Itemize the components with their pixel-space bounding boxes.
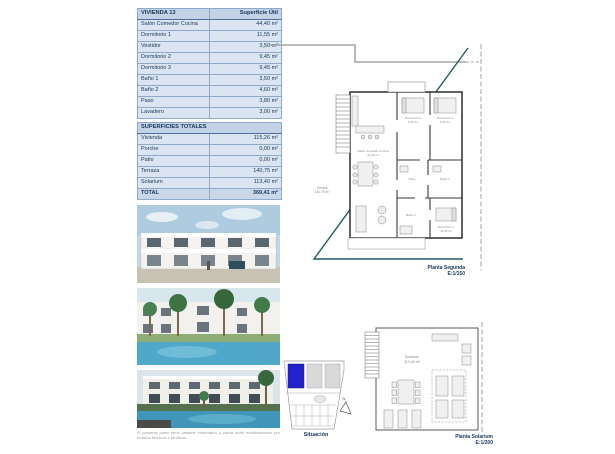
table-row: Porche0,00 m² (138, 145, 282, 156)
total-row: TOTAL369,41 m² (138, 189, 282, 200)
plot-boundary-line (270, 45, 466, 62)
salon-area: 44,40 m² (367, 153, 379, 157)
table-row: Dormitorio 39,45 m² (138, 64, 282, 75)
row-label: Solarium (138, 178, 210, 189)
balcony (388, 82, 425, 92)
block (325, 364, 340, 388)
row-label: Patio (138, 156, 210, 167)
plan-segunda-scale: E:1/150 (385, 271, 465, 277)
situacion-map: N (276, 356, 356, 432)
table-row: Dormitorio 111,55 m² (138, 31, 282, 42)
vivienda-table-header: VIVIENDA 13 Superficie Útil (138, 9, 282, 20)
disclaimer-text: El presente plano tiene carácter informa… (137, 430, 280, 440)
table-row: Vestidor3,50 m² (138, 42, 282, 53)
vivienda-title: VIVIENDA 13 (138, 9, 210, 20)
dorm2-area: 9,45 m² (408, 120, 418, 124)
row-label: Paso (138, 97, 210, 108)
townhouse-row (141, 233, 276, 270)
dorm1-area: 11,55 m² (440, 229, 452, 233)
row-label: Dormitorio 1 (138, 31, 210, 42)
stairs (365, 332, 379, 378)
bano1-label: Baño 1 (440, 177, 450, 181)
row-label: Dormitorio 3 (138, 64, 210, 75)
plan-solarium-scale: E:1/200 (400, 440, 493, 446)
solarium-area: 113,40 m² (404, 360, 421, 364)
table-row: Terraza140,75 m² (138, 167, 282, 178)
row-label: Dormitorio 2 (138, 53, 210, 64)
row-label: Porche (138, 145, 210, 156)
solarium-plan: Solarium 113,40 m² (360, 322, 495, 434)
highlighted-block (288, 364, 304, 388)
render-photo-townhouses (137, 205, 280, 283)
stairs (336, 95, 350, 153)
plan-segunda-caption: Planta Segunda E:1/150 (385, 265, 465, 278)
vivienda-table: VIVIENDA 13 Superficie Útil Salón Comedo… (137, 8, 282, 119)
dorm3-area: 9,45 m² (440, 120, 450, 124)
totales-table: SUPERFICIES TOTALES Vivienda115,26 m² Po… (137, 122, 282, 200)
row-label: Lavadero (138, 108, 210, 119)
row-label: Terraza (138, 167, 210, 178)
north-arrow: N (340, 396, 351, 414)
situacion-caption: Situación (280, 432, 352, 439)
row-label: Baño 1 (138, 75, 210, 86)
table-row: Vivienda115,26 m² (138, 134, 282, 145)
totales-title: SUPERFICIES TOTALES (138, 123, 282, 134)
table-row: Paso3,80 m² (138, 97, 282, 108)
solarium-label: Solarium (405, 355, 419, 359)
table-row: Solarium113,40 m² (138, 178, 282, 189)
terraza-area: 140,75 m² (315, 190, 329, 194)
table-row: Patio0,00 m² (138, 156, 282, 167)
table-row: Dormitorio 29,45 m² (138, 53, 282, 64)
paso-label: Paso (409, 177, 416, 181)
pond (314, 396, 326, 403)
total-label: TOTAL (138, 189, 210, 200)
row-label: Baño 2 (138, 86, 210, 97)
table-row: Lavadero3,00 m² (138, 108, 282, 119)
table-row: Baño 24,60 m² (138, 86, 282, 97)
row-label: Vestidor (138, 42, 210, 53)
north-letter: N (343, 396, 346, 401)
render-photo-apartments-pool (137, 370, 280, 428)
vivienda-header-value: Superficie Útil (210, 9, 282, 20)
row-label: Salón Comedor Cocina (138, 20, 210, 31)
block (307, 364, 322, 388)
plan-solarium-caption: Planta Solarium E:1/200 (400, 434, 493, 447)
render-photo-pool-garden (137, 288, 280, 365)
table-row: Salón Comedor Cocina44,40 m² (138, 20, 282, 31)
table-row: Baño 13,50 m² (138, 75, 282, 86)
floor-plan-segunda: Terraza 140,75 m² (270, 20, 500, 282)
totales-table-header: SUPERFICIES TOTALES (138, 123, 282, 134)
bano2-label: Baño 2 (406, 213, 416, 217)
row-label: Vivienda (138, 134, 210, 145)
